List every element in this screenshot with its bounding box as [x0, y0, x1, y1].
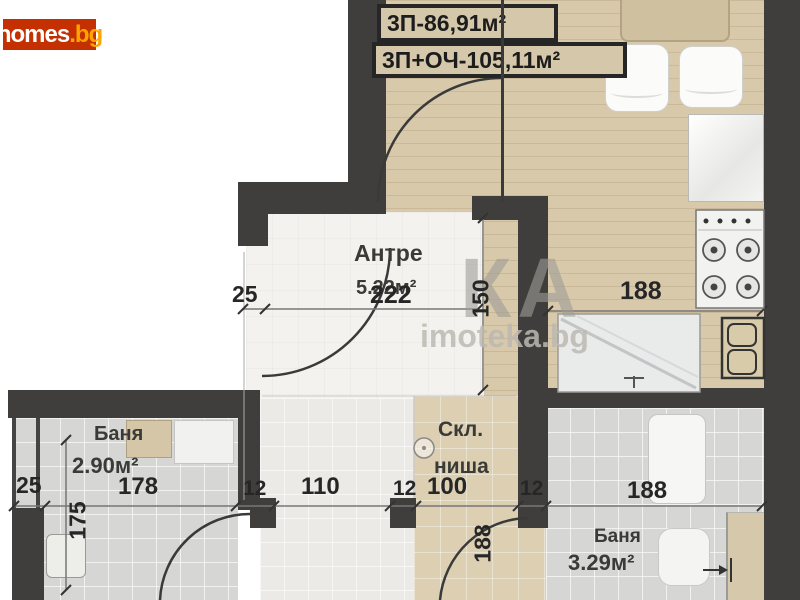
floor-plan-screenshot: КА imoteka.bg 3П-86,91м² 3П+ОЧ-105,11м² …: [0, 0, 800, 600]
homes-bg-logo: homes.bg: [3, 19, 96, 50]
wall: [8, 390, 260, 418]
dim-jamb: 12: [243, 478, 266, 499]
dim-bath-right-width: 188: [627, 479, 667, 503]
dim-jamb: 12: [520, 478, 543, 499]
shower-icon: [726, 512, 764, 600]
door-jamb: [390, 498, 416, 528]
dim-hall-height: 150: [470, 274, 493, 324]
logo-text: homes: [0, 23, 69, 47]
wall: [238, 214, 268, 246]
dim-bath-left-width: 178: [118, 475, 158, 499]
bathroom-right-area: 3.29м²: [568, 552, 634, 574]
bathroom-right-label: Баня: [594, 527, 641, 546]
dim-hall-width: 222: [370, 283, 412, 308]
dim-post-width: 25: [232, 283, 258, 306]
dining-table: [620, 0, 730, 42]
wall: [546, 388, 766, 408]
outer-wall-right: [764, 0, 800, 600]
area-label-box-2: 3П+ОЧ-105,11м²: [372, 42, 627, 78]
dim-kitchen-width: 188: [620, 279, 662, 304]
door-leaf-line: [501, 0, 504, 202]
fridge-icon: [688, 114, 764, 202]
hallway-label: Антре: [354, 242, 423, 265]
bathroom-left-label: Баня: [94, 424, 143, 444]
dim-niche-width: 100: [427, 475, 467, 499]
dim-jamb: 12: [393, 478, 416, 499]
total-area-with-common-label: 3П+ОЧ-105,11м²: [382, 49, 560, 72]
wall: [238, 182, 386, 214]
dim-bath-left-height: 175: [67, 496, 90, 546]
niche-label-line1: Скл.: [438, 419, 483, 440]
total-area-label: 3П-86,91м²: [387, 12, 506, 35]
chair-icon: [679, 46, 743, 108]
dim-corner: 25: [16, 474, 42, 497]
area-label-box-1: 3П-86,91м²: [377, 4, 558, 42]
logo-suffix: .bg: [69, 23, 102, 47]
wall: [12, 508, 44, 600]
dim-niche-height: 188: [472, 519, 495, 569]
door-jamb: [250, 498, 276, 528]
watermark-site: imoteka.bg: [420, 320, 589, 352]
bathroom-counter: [174, 420, 234, 464]
toilet-icon: [658, 528, 710, 586]
dim-corridor-width: 110: [301, 475, 340, 499]
